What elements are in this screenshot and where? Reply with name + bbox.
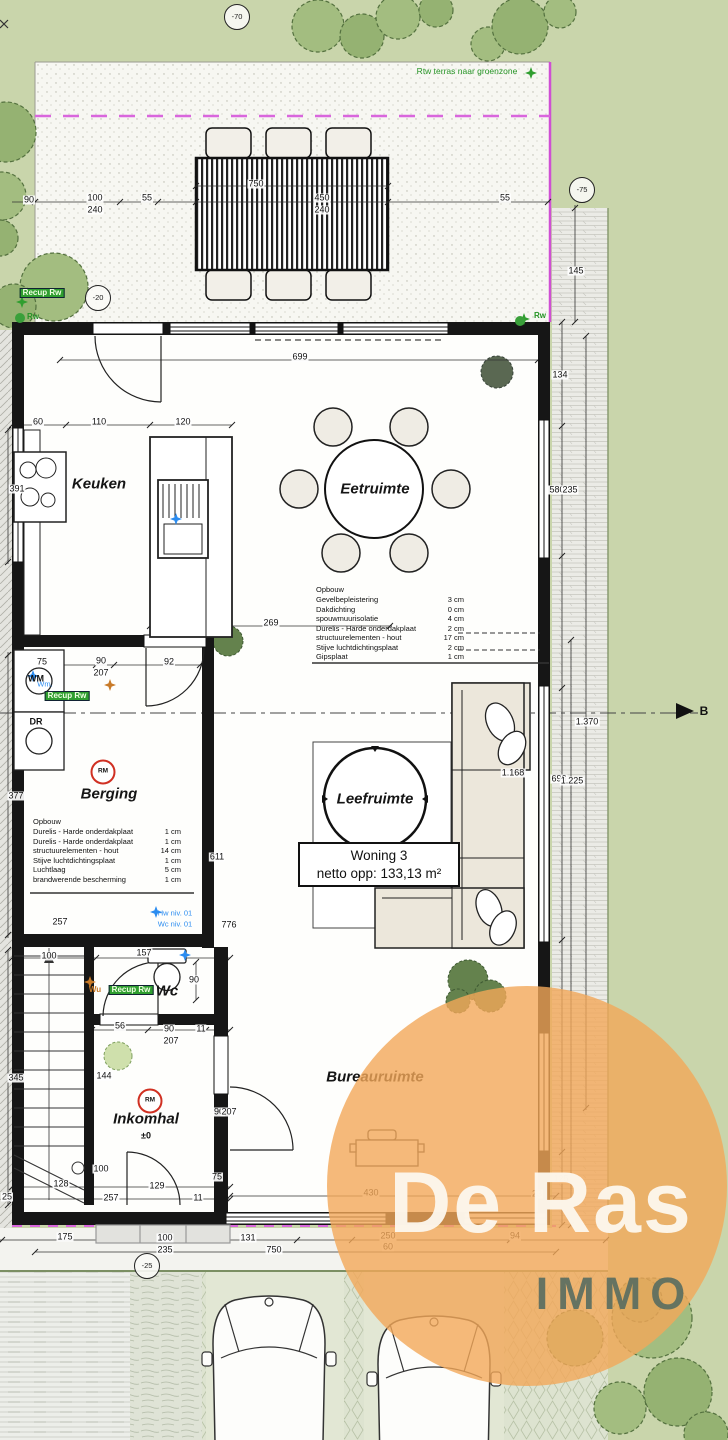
dimension-label: 175 bbox=[56, 1233, 73, 1242]
room-label-eetruimte: Eetruimte bbox=[340, 482, 409, 497]
buildup-row: Stijve luchtdichtingsplaat2 cm bbox=[316, 643, 464, 652]
buildup-layer-name: structuurelementen - hout bbox=[33, 846, 118, 855]
buildup-layer-name: Gipsplaat bbox=[316, 652, 348, 661]
dimension-label: 257 bbox=[102, 1194, 119, 1203]
dimension-label: 75 bbox=[211, 1173, 223, 1182]
dimension-label: 100 bbox=[92, 1165, 109, 1174]
dimension-label: 207 bbox=[220, 1108, 237, 1117]
buildup-row: Gevelbepleistering3 cm bbox=[316, 595, 464, 604]
dimension-label: 157 bbox=[135, 949, 152, 958]
dimension-label: 55 bbox=[141, 194, 153, 203]
wall-buildup-note-interior: Opbouw Durelis - Harde onderdakplaat1 cm… bbox=[33, 817, 181, 884]
dimension-label: 131 bbox=[239, 1234, 256, 1243]
buildup-row: Durelis - Harde onderdakplaat1 cm bbox=[33, 827, 181, 836]
level-marker: -75 bbox=[569, 177, 595, 203]
room-label-wc: Wc bbox=[156, 984, 179, 999]
buildup-layer-name: structuurelementen - hout bbox=[316, 633, 401, 642]
buildup-layer-thickness: 1 cm bbox=[165, 837, 181, 846]
buildup-title: Opbouw bbox=[33, 817, 181, 826]
rainwater-label: Rw bbox=[534, 312, 546, 320]
room-label-berging: Berging bbox=[81, 787, 138, 802]
dimension-label: 776 bbox=[220, 921, 237, 930]
dimension-label: 56 bbox=[114, 1022, 126, 1031]
room-label-leefruimte: Leefruimte bbox=[337, 792, 414, 807]
dimension-label: 100 bbox=[86, 194, 103, 203]
dimension-label: 611 bbox=[209, 853, 225, 862]
water-label: Hw niv. 01 bbox=[158, 909, 192, 917]
small-label: ±0 bbox=[141, 1132, 151, 1141]
small-label: DR bbox=[30, 718, 43, 727]
level-marker: -20 bbox=[85, 285, 111, 311]
dimension-label: 750 bbox=[265, 1246, 282, 1255]
smoke-detector-marker: RM bbox=[91, 760, 116, 785]
watermark-immo: IMMO bbox=[536, 1268, 694, 1320]
buildup-row: brandwerende bescherming1 cm bbox=[33, 875, 181, 884]
buildup-layer-thickness: 14 cm bbox=[161, 846, 181, 855]
dimension-label: 257 bbox=[51, 918, 68, 927]
dimension-label: 100 bbox=[40, 952, 57, 961]
wall-buildup-note-exterior: Opbouw Gevelbepleistering3 cmDakdichting… bbox=[316, 585, 464, 662]
buildup-layer-name: Dakdichting bbox=[316, 605, 355, 614]
dimension-label: 269 bbox=[262, 619, 279, 628]
dimension-label: 235 bbox=[561, 486, 578, 495]
buildup-layer-thickness: 1 cm bbox=[165, 856, 181, 865]
buildup-row: structuurelementen - hout17 cm bbox=[316, 633, 464, 642]
dimension-label: 345 bbox=[7, 1074, 24, 1083]
buildup-layer-thickness: 5 cm bbox=[165, 865, 181, 874]
dimension-label: 128 bbox=[52, 1180, 69, 1189]
rainwater-label: Recup Rw bbox=[20, 288, 65, 298]
dimension-label: 240 bbox=[86, 206, 103, 215]
dimension-label: 11 bbox=[192, 1194, 203, 1203]
unit-net-area: netto opp: 133,13 m² bbox=[300, 865, 458, 883]
buildup-layer-thickness: 2 cm bbox=[448, 643, 464, 652]
small-label: WM bbox=[28, 675, 44, 684]
dimension-label: 1.225 bbox=[560, 777, 585, 786]
dimension-label: 144 bbox=[95, 1072, 112, 1081]
dimension-label: 90 bbox=[163, 1025, 175, 1034]
buildup-layer-name: Stijve luchtdichtingsplaat bbox=[33, 856, 115, 865]
dimension-label: 240 bbox=[313, 206, 330, 215]
buildup-layer-name: Durelis - Harde onderdakplaat bbox=[33, 837, 133, 846]
dimension-label: 450 bbox=[313, 194, 330, 203]
dimension-label: 90 bbox=[188, 976, 200, 985]
dimension-label: 1.370 bbox=[575, 718, 600, 727]
buildup-layer-thickness: 1 cm bbox=[165, 875, 181, 884]
rainwater-label: Recup Rw bbox=[109, 985, 154, 995]
dimension-label: 699 bbox=[291, 353, 308, 362]
dimension-label: 134 bbox=[551, 371, 568, 380]
dimension-label: 90 bbox=[23, 196, 35, 205]
dimension-label: 207 bbox=[92, 669, 109, 678]
floor-plan-canvas: KeukenEetruimteBergingLeefruimteWcInkomh… bbox=[0, 0, 728, 1440]
buildup-row: Luchtlaag5 cm bbox=[33, 865, 181, 874]
buildup-layer-thickness: 1 cm bbox=[448, 652, 464, 661]
dimension-label: 377 bbox=[7, 792, 24, 801]
buildup-layer-name: brandwerende bescherming bbox=[33, 875, 126, 884]
unit-area-box: Woning 3 netto opp: 133,13 m² bbox=[298, 842, 460, 887]
buildup-layer-thickness: 3 cm bbox=[448, 595, 464, 604]
buildup-layer-name: spouwmuurisolatie bbox=[316, 614, 378, 623]
dimension-label: 391 bbox=[8, 485, 25, 494]
buildup-layer-name: Durelis - Harde onderdakplaat bbox=[316, 624, 416, 633]
dimension-label: 90 bbox=[95, 657, 107, 666]
buildup-row: structuurelementen - hout14 cm bbox=[33, 846, 181, 855]
buildup-row: Stijve luchtdichtingsplaat1 cm bbox=[33, 856, 181, 865]
watermark-brand: De Ras bbox=[389, 1154, 693, 1253]
dimension-label: 55 bbox=[499, 194, 511, 203]
dimension-label: 100 bbox=[156, 1234, 173, 1243]
buildup-row: spouwmuurisolatie4 cm bbox=[316, 614, 464, 623]
buildup-layer-thickness: 1 cm bbox=[165, 827, 181, 836]
rainwater-label: Rw bbox=[27, 313, 39, 321]
buildup-layer-thickness: 2 cm bbox=[448, 624, 464, 633]
smoke-detector-marker: RM bbox=[138, 1089, 163, 1114]
utility-label: Wu bbox=[89, 986, 101, 994]
buildup-row: Durelis - Harde onderdakplaat2 cm bbox=[316, 624, 464, 633]
buildup-layer-name: Gevelbepleistering bbox=[316, 595, 378, 604]
room-label-inkomhal: Inkomhal bbox=[113, 1112, 179, 1127]
buildup-layer-thickness: 0 cm bbox=[448, 605, 464, 614]
dimension-label: 750 bbox=[247, 180, 264, 189]
dimension-label: 120 bbox=[174, 418, 191, 427]
dimension-label: 75 bbox=[36, 658, 48, 667]
water-label: Wc niv. 01 bbox=[158, 920, 192, 928]
buildup-row: Durelis - Harde onderdakplaat1 cm bbox=[33, 837, 181, 846]
buildup-layer-name: Durelis - Harde onderdakplaat bbox=[33, 827, 133, 836]
buildup-layer-thickness: 17 cm bbox=[444, 633, 464, 642]
buildup-layer-thickness: 4 cm bbox=[448, 614, 464, 623]
dimension-label: 110 bbox=[91, 418, 107, 427]
buildup-row: Dakdichting0 cm bbox=[316, 605, 464, 614]
small-label: B bbox=[700, 705, 709, 717]
dimension-label: 11 bbox=[195, 1025, 206, 1034]
level-marker: -70 bbox=[224, 4, 250, 30]
rainwater-label: Recup Rw bbox=[45, 691, 90, 701]
dimension-label: 129 bbox=[148, 1182, 165, 1191]
terrace-note: Rtw terras naar groenzone bbox=[417, 66, 518, 76]
deras-immo-watermark: De Ras IMMO bbox=[327, 986, 727, 1386]
buildup-layer-name: Luchtlaag bbox=[33, 865, 66, 874]
unit-name: Woning 3 bbox=[300, 847, 458, 865]
dimension-label: 145 bbox=[567, 267, 584, 276]
buildup-row: Gipsplaat1 cm bbox=[316, 652, 464, 661]
dimension-label: 92 bbox=[163, 658, 175, 667]
dimension-label: 1.168 bbox=[501, 769, 526, 778]
buildup-layer-name: Stijve luchtdichtingsplaat bbox=[316, 643, 398, 652]
dimension-label: 207 bbox=[162, 1037, 179, 1046]
buildup-title: Opbouw bbox=[316, 585, 464, 594]
room-label-keuken: Keuken bbox=[72, 477, 126, 492]
dimension-label: 25 bbox=[1, 1193, 13, 1202]
dimension-label: 235 bbox=[156, 1246, 173, 1255]
level-marker: -25 bbox=[134, 1253, 160, 1279]
dimension-label: 60 bbox=[32, 418, 44, 427]
